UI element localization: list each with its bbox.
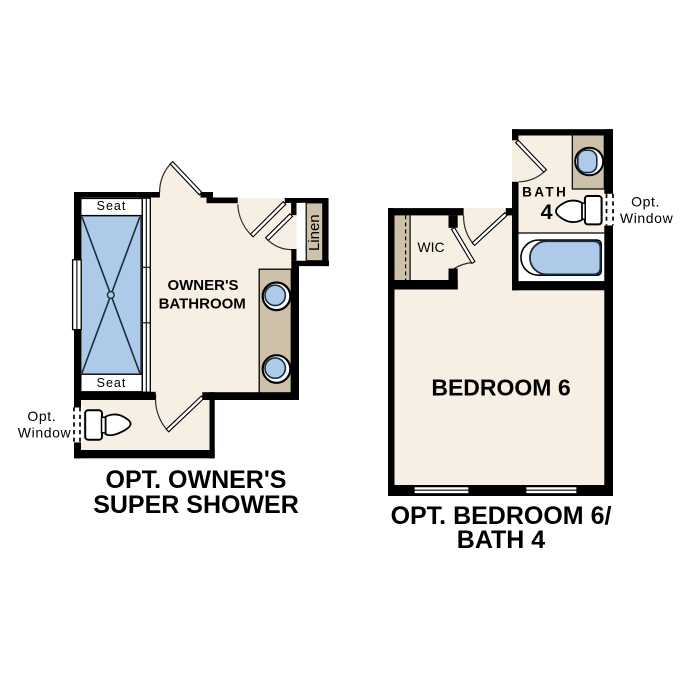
svg-text:BATH: BATH bbox=[522, 184, 568, 199]
svg-text:BATHROOM: BATHROOM bbox=[159, 296, 246, 313]
svg-text:Opt.: Opt. bbox=[27, 408, 56, 424]
svg-text:OWNER'S: OWNER'S bbox=[167, 277, 238, 294]
svg-text:4: 4 bbox=[541, 200, 553, 224]
svg-text:Window: Window bbox=[620, 210, 674, 226]
svg-text:OPT. OWNER'S: OPT. OWNER'S bbox=[106, 466, 287, 494]
svg-text:Seat: Seat bbox=[97, 199, 127, 213]
svg-text:BATH 4: BATH 4 bbox=[457, 526, 546, 554]
svg-text:Opt.: Opt. bbox=[631, 194, 660, 210]
svg-text:Seat: Seat bbox=[97, 376, 127, 390]
svg-text:Linen: Linen bbox=[306, 214, 323, 251]
svg-text:WIC: WIC bbox=[417, 239, 444, 255]
svg-text:Window: Window bbox=[18, 425, 72, 441]
svg-text:SUPER SHOWER: SUPER SHOWER bbox=[93, 491, 299, 519]
svg-text:BEDROOM 6: BEDROOM 6 bbox=[431, 374, 570, 400]
